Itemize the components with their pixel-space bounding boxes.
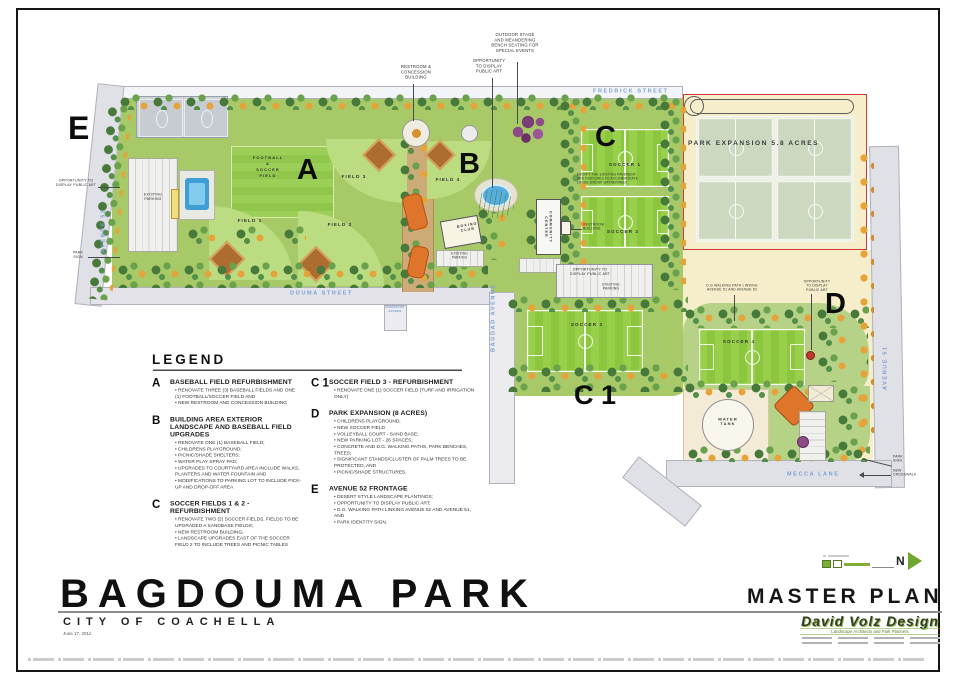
legend-marker: C 1 xyxy=(311,377,329,400)
label-water-tank: WATER TANK xyxy=(706,417,750,426)
street-label-damascus: DAMASCUS AVENUE xyxy=(377,306,413,314)
callout-park-sign-west: PARK SIGN xyxy=(64,250,92,259)
label-football-field: FOOTBALL & SOCCER FIELD xyxy=(246,155,290,179)
legend-column-1: A BASEBALL FIELD REFURBISHMENT RENOVATE … xyxy=(152,377,302,556)
north-arrow-icon xyxy=(908,552,922,570)
scale-microtext xyxy=(823,555,851,557)
legend-bullet: PARK IDENTITY SIGN. xyxy=(334,519,476,525)
community-center-parking xyxy=(519,258,561,273)
scale-bar xyxy=(833,560,842,568)
label-community-center: COMMUNITY CENTER xyxy=(544,205,553,249)
address-line xyxy=(802,637,832,639)
avenue51-road xyxy=(869,146,905,488)
legend-item-title: BASEBALL FIELD REFURBISHMENT xyxy=(170,378,302,386)
legend-bullet: RENOVATE ONE (1) SOCCER FIELD (TURF AND … xyxy=(334,388,476,401)
zone-marker-b: B xyxy=(459,150,480,179)
callout-public-art-top: OPPORTUNITY TO DISPLAY PUBLIC ART xyxy=(462,58,516,74)
volleyball-court xyxy=(808,385,834,402)
outdoor-stage xyxy=(461,125,478,142)
city-subtitle: CITY OF COACHELLA xyxy=(63,616,280,628)
address-line xyxy=(838,642,868,644)
future-field xyxy=(698,118,773,177)
legend-item: E AVENUE 52 FRONTAGE DESERT STYLE LANDSC… xyxy=(311,484,476,526)
plaza-fountain xyxy=(412,129,421,138)
label-soccer-1: SOCCER 1 xyxy=(596,162,654,167)
legend-rule xyxy=(153,370,462,372)
street-label-avenue52: AVENUE 52 xyxy=(100,193,106,253)
callout-park-sign-east: PARK SIGN xyxy=(893,455,919,463)
legend-bullet: LANDSCAPE UPGRADES EAST OF THE SOCCER FI… xyxy=(175,536,302,549)
legend: LEGEND A BASEBALL FIELD REFURBISHMENT RE… xyxy=(152,352,482,556)
callout-public-art-parking: OPPORTUNITY TO DISPLAY PUBLIC ART xyxy=(560,267,620,276)
shade-structure xyxy=(797,436,809,448)
scale-bar xyxy=(844,563,870,566)
public-art-garden xyxy=(478,190,514,218)
label-existing-parking-central: EXISTING PARKING xyxy=(437,252,482,260)
label-field-2: FIELD 2 xyxy=(320,222,360,227)
legend-item: A BASEBALL FIELD REFURBISHMENT RENOVATE … xyxy=(152,377,302,406)
legend-marker: A xyxy=(152,377,170,406)
legend-bullet: RENOVATE THREE (3) BASEBALL FIELDS AND O… xyxy=(175,388,302,401)
north-label: N xyxy=(896,554,905,568)
tree-band xyxy=(686,446,870,462)
legend-item: B BUILDING AREA EXTERIOR LANDSCAPE AND B… xyxy=(152,414,302,490)
firm-address-block-2 xyxy=(802,642,940,644)
firm-address-block xyxy=(802,637,940,639)
address-line xyxy=(910,642,940,644)
label-existing-parking-west: EXISTING PARKING xyxy=(128,192,178,201)
callout-outdoor-stage: OUTDOOR STAGE AND MEANDERING BENCH SEATI… xyxy=(480,32,550,53)
legend-marker: D xyxy=(311,408,329,475)
leader-line xyxy=(492,78,493,188)
leader-line xyxy=(517,62,518,124)
address-line xyxy=(802,642,832,644)
soccer-field-2 xyxy=(581,196,669,248)
legend-item-title: SOCCER FIELD 3 - REFURBISHMENT xyxy=(329,378,476,386)
legend-bullet: NEW RESTROOM AND CONCESSION BUILDING xyxy=(175,400,302,406)
address-line xyxy=(910,637,940,639)
label-existing-parking-bar: EXISTING PARKING xyxy=(596,283,626,291)
expansion-loop-knob xyxy=(684,96,704,116)
legend-bullet: PICNIC/SHADE STRUCTURES. xyxy=(334,469,476,475)
zone-marker-c: C xyxy=(595,123,616,152)
callout-public-art-west: OPPORTUNITY TO DISPLAY PUBLIC ART xyxy=(52,178,100,187)
leader-line xyxy=(734,295,735,321)
expansion-walking-loop xyxy=(690,99,854,114)
footer-microtext xyxy=(28,658,928,661)
legend-item: C SOCCER FIELDS 1 & 2 - REFURBISHMENT RE… xyxy=(152,499,302,549)
legend-bullet: RENOVATE TWO (2) SOCCER FIELDS, FIELDS T… xyxy=(175,517,302,530)
tree-band xyxy=(186,226,306,248)
street-label-bagdad: BAGDAD AVENUE xyxy=(490,292,496,352)
scale-bar xyxy=(822,560,831,568)
address-line xyxy=(838,637,868,639)
note-modify-pavement: MODIFY THE EXISTING PAVEMENT AND FEATURE… xyxy=(577,173,647,185)
label-soccer-2: SOCCER 2 xyxy=(594,229,652,234)
legend-bullet: SIGNIFICANT STANDS/CLUSTER OF PALM TREES… xyxy=(334,457,476,470)
future-field xyxy=(777,118,852,177)
future-field xyxy=(777,181,852,240)
tree-band xyxy=(506,296,688,312)
leader-line xyxy=(88,257,120,258)
zone-marker-d: D xyxy=(825,290,846,319)
label-soccer-4: SOCCER 4 xyxy=(710,339,768,344)
legend-item: C 1 SOCCER FIELD 3 - REFURBISHMENT RENOV… xyxy=(311,377,476,400)
legend-item-title: BUILDING AREA EXTERIOR LANDSCAPE AND BAS… xyxy=(170,415,302,438)
tree-band xyxy=(558,98,586,284)
leader-line xyxy=(811,294,812,350)
address-line xyxy=(874,637,904,639)
swimming-pool-inner xyxy=(189,183,205,205)
legend-bullet: CONCRETE AND D.G. WALKING PATHS, PARK BE… xyxy=(334,444,476,457)
legend-marker: C xyxy=(152,499,170,549)
callout-new-crosswalk: NEW CROSSWALK xyxy=(893,469,927,477)
street-label-fredrick: FREDRICK STREET xyxy=(593,88,693,94)
public-art-marker xyxy=(806,351,815,360)
leader-line xyxy=(413,84,414,121)
scale-line xyxy=(872,567,894,568)
label-field-3: FIELD 3 xyxy=(334,174,374,179)
firm-name: David Volz Design xyxy=(799,613,941,629)
leader-line xyxy=(571,229,582,230)
address-line xyxy=(874,642,904,644)
legend-item-title: PARK EXPANSION (8 ACRES) xyxy=(329,409,476,417)
firm-tagline: Landscape Architects and Park Planners xyxy=(800,628,940,635)
label-soccer-3: SOCCER 3 xyxy=(558,322,616,327)
plan-date: June 17, 2011 xyxy=(63,631,91,636)
street-label-avenue51: AVENUE 51 xyxy=(882,330,888,390)
label-field-1: FIELD 1 xyxy=(230,218,270,223)
legend-bullet: D.G. WALKING PATH LINKING AVENUE 52 AND … xyxy=(334,507,476,520)
zone-marker-c1: C 1 xyxy=(574,382,616,409)
legend-item: D PARK EXPANSION (8 ACRES) CHILDRENS PLA… xyxy=(311,408,476,475)
restroom-building-c xyxy=(561,221,571,235)
palm-tree-cluster xyxy=(510,114,550,148)
legend-heading: LEGEND xyxy=(152,352,482,368)
callout-dg-path: D.G WALKING PATH LINKING AVENUE 51 AND A… xyxy=(698,284,766,292)
legend-marker: B xyxy=(152,414,170,490)
tree-band xyxy=(118,94,680,110)
legend-item-title: SOCCER FIELDS 1 & 2 - REFURBISHMENT xyxy=(170,500,302,515)
legend-marker: E xyxy=(311,484,329,526)
street-label-mecca: MECCA LANE xyxy=(787,471,867,477)
legend-bullet: MODIFICATIONS TO PARKING LOT TO INCLUDE … xyxy=(175,478,302,491)
plan-type-title: MASTER PLAN xyxy=(747,585,943,609)
soccer-field-4 xyxy=(699,329,805,385)
desert-tree-band xyxy=(858,150,874,440)
label-park-expansion: PARK EXPANSION 5.8 ACRES xyxy=(688,139,860,147)
zone-marker-a: A xyxy=(297,156,318,185)
street-label-douma: DOUMA STREET xyxy=(290,290,390,296)
legend-bullet: UPGRADES TO COURTYARD AREA INCLUDE WALKS… xyxy=(175,465,302,478)
future-field xyxy=(698,181,773,240)
zone-marker-e: E xyxy=(68,112,89,144)
callout-restroom-concession: RESTROOM & CONCESSION BUILDING xyxy=(388,64,444,80)
legend-item-title: AVENUE 52 FRONTAGE xyxy=(329,485,476,493)
soccer-field-3 xyxy=(527,310,643,372)
tree-band xyxy=(658,98,686,290)
expansion-future-fields xyxy=(696,116,854,242)
leader-line xyxy=(98,187,120,188)
legend-column-2: C 1 SOCCER FIELD 3 - REFURBISHMENT RENOV… xyxy=(311,377,476,556)
